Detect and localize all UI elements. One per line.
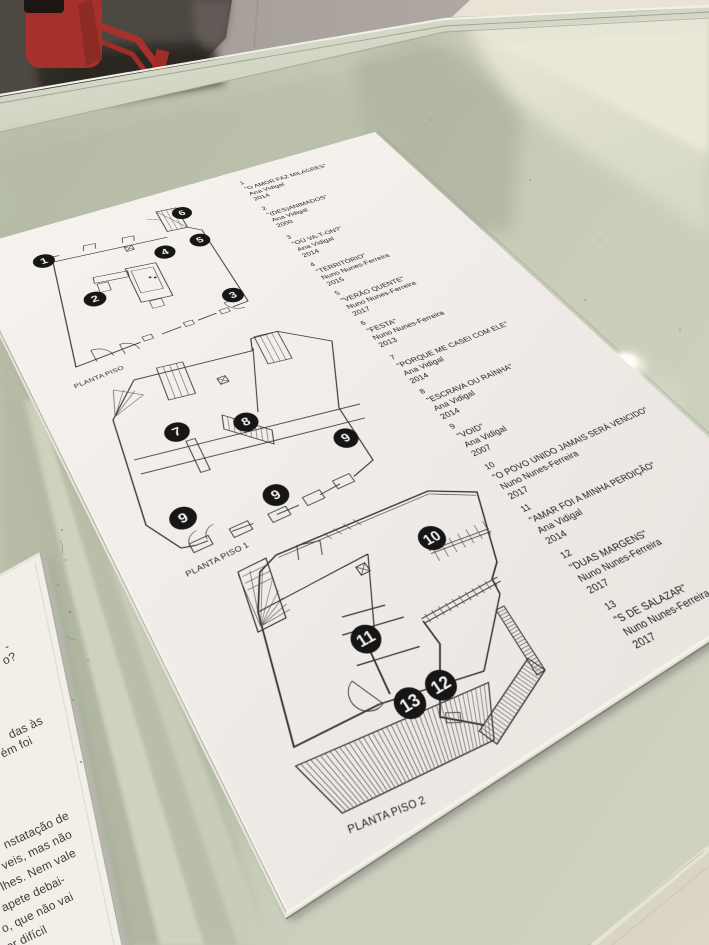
- svg-text:PLANTA PISO: PLANTA PISO: [73, 365, 126, 390]
- svg-text:PLANTA PISO 1: PLANTA PISO 1: [184, 542, 251, 580]
